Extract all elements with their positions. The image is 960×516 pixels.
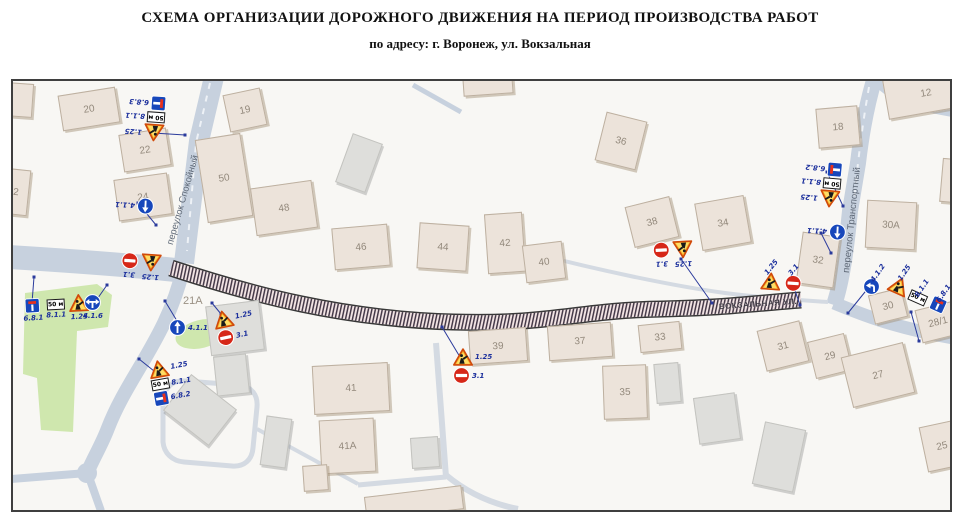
sign-group-middle: 1.25 3.1 xyxy=(453,348,492,384)
no-entry-sign-icon xyxy=(453,367,470,384)
no-entry-sign-icon xyxy=(216,328,236,348)
dead-end-right-sign-icon xyxy=(827,162,843,178)
go-straight-sign-icon xyxy=(169,319,186,336)
sign-code: 1.25 xyxy=(141,272,159,281)
sign-code: 1.25 xyxy=(675,259,693,268)
sign-code: 4.1.1 xyxy=(807,226,827,235)
sign-code: 4.1.6 xyxy=(83,312,103,320)
sign-code: 6.8.2 xyxy=(805,163,826,173)
sign-code: 1.25 xyxy=(800,192,818,201)
map: 2 20 22 24 19 50 48 46 44 42 40 36 38 34… xyxy=(11,79,952,512)
sign-group-west-intersection-north: 1.25 3.1 xyxy=(120,252,162,282)
go-straight-sign-icon xyxy=(828,223,846,241)
sign-group-east-of-34: 1.25 3.1 xyxy=(760,263,803,293)
no-entry-sign-icon xyxy=(121,252,139,270)
sign-code: 8.1.1 xyxy=(171,375,192,386)
sign-code: 8.1.1 xyxy=(125,111,145,120)
sign-code: 3.1 xyxy=(472,372,484,380)
roadworks-sign-icon xyxy=(147,358,170,379)
no-entry-sign-icon xyxy=(652,242,670,260)
sign-code: 1.25 xyxy=(124,127,142,136)
sign-group-spokoyny-north: 1.25 50 м8.1.1 6.8.3 xyxy=(123,94,166,143)
distance-plate: 50 м xyxy=(46,298,65,310)
sign-code: 1.25 xyxy=(234,309,253,320)
roadworks-sign-icon xyxy=(453,348,473,366)
sign-group-right-or-left: 4.1.6 xyxy=(83,294,103,320)
distance-plate: 50 м xyxy=(823,177,842,190)
sign-code: 8.1.1 xyxy=(46,310,66,319)
sign-code: 8.1.1 xyxy=(801,177,822,187)
dead-end-right-sign-icon xyxy=(153,390,170,407)
sign-group-west-approach: 6.8.1 50 м8.1.1 1.25 xyxy=(22,293,89,323)
sign-group-turn: 4.1.2 xyxy=(856,269,888,295)
sign-group-west-of-38: 1.25 3.1 xyxy=(652,240,693,269)
page-subtitle: по адресу: г. Воронеж, ул. Вокзальная xyxy=(0,36,960,52)
page-title: СХЕМА ОРГАНИЗАЦИИ ДОРОЖНОГО ДВИЖЕНИЯ НА … xyxy=(0,10,960,27)
go-straight-sign-icon xyxy=(136,197,154,215)
right-or-left-sign-icon xyxy=(84,294,101,311)
leader-lines-layer xyxy=(13,81,950,510)
sign-group-transportny-north: 1.25 50 м8.1.1 6.8.2 xyxy=(799,159,843,208)
sign-group-go-straight-21A: 4.1.1 xyxy=(169,319,208,336)
roadworks-sign-icon xyxy=(760,272,781,291)
sign-code: 1.25 xyxy=(170,360,188,371)
roadworks-sign-icon xyxy=(819,189,840,209)
sign-code: 6.8.1 xyxy=(935,283,952,304)
distance-plate: 50 м xyxy=(147,111,166,123)
sign-code: 4.1.1 xyxy=(188,324,208,332)
dead-end-left-sign-icon xyxy=(150,95,166,111)
sign-code: 3.1 xyxy=(122,270,135,279)
dead-end-sign-icon xyxy=(25,297,41,313)
roadworks-sign-icon xyxy=(143,123,164,142)
sign-group-go-straight-west: 4.1.1 xyxy=(115,196,155,215)
sign-code: 6.8.1 xyxy=(23,313,43,322)
sign-code: 4.1.1 xyxy=(115,200,135,209)
sign-group-go-straight-east: 4.1.1 xyxy=(807,222,847,241)
sign-code: 6.8.2 xyxy=(170,389,191,400)
roadworks-sign-icon xyxy=(672,240,693,259)
title-block: СХЕМА ОРГАНИЗАЦИИ ДОРОЖНОГО ДВИЖЕНИЯ НА … xyxy=(0,0,960,52)
roadworks-sign-icon xyxy=(141,253,162,272)
sign-code: 3.1 xyxy=(656,260,669,269)
sign-code: 6.8.3 xyxy=(129,97,149,106)
sign-code: 1.25 xyxy=(475,353,492,361)
sign-group-south-approach: 1.25 50 м8.1.1 6.8.2 xyxy=(147,355,194,407)
sign-code: 3.1 xyxy=(235,329,249,339)
